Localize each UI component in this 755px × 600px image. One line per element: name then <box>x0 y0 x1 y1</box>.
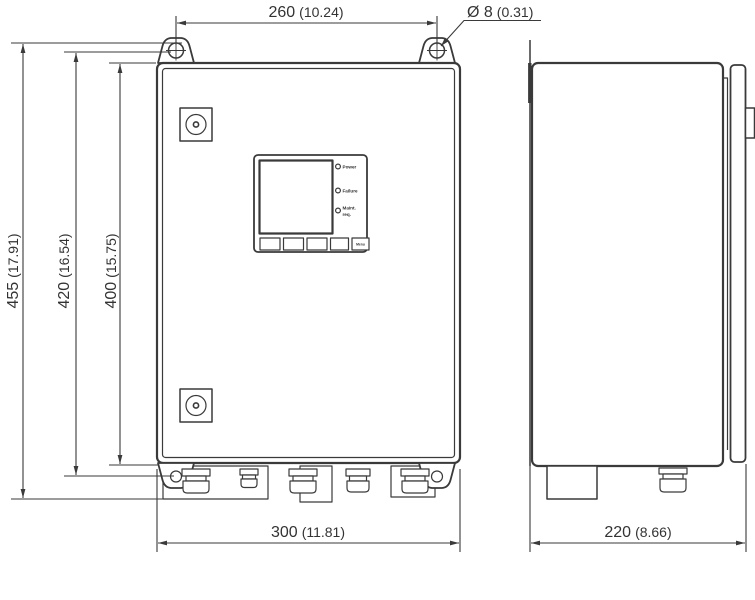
bottom-box-side <box>547 466 597 499</box>
mounting-hole-bottom-right <box>432 471 443 482</box>
soft-key-3 <box>307 238 327 250</box>
led-failure-label: Failure <box>343 189 359 194</box>
dim-label-body-height: 400(15.75) <box>103 233 120 308</box>
side-view <box>530 40 755 499</box>
soft-key-1 <box>260 238 280 250</box>
led-maint-icon <box>336 208 341 213</box>
led-maint-label-line2: req. <box>343 212 351 217</box>
wall-bracket <box>731 65 746 462</box>
cable-gland-3 <box>289 469 317 493</box>
dimension-lug-spacing: 260(10.24) <box>176 4 437 45</box>
cable-gland-4 <box>346 469 370 492</box>
dim-label-body-width: 300(11.81) <box>271 524 345 541</box>
soft-key-2 <box>284 238 304 250</box>
enclosure-body-side <box>532 63 723 466</box>
door-screw-bottom <box>180 389 212 422</box>
display-screen <box>260 161 333 234</box>
drawing-canvas: Power Failure Maint. req. Menu <box>0 0 755 600</box>
led-maint-label: Maint. <box>343 206 356 211</box>
cable-gland-2 <box>240 469 258 488</box>
led-power-icon <box>336 164 341 169</box>
led-power-label: Power <box>343 165 357 170</box>
control-panel: Power Failure Maint. req. Menu <box>254 155 369 252</box>
cable-gland-side <box>659 468 687 492</box>
cable-gland-5 <box>401 469 429 493</box>
front-view: Power Failure Maint. req. Menu <box>157 38 460 502</box>
menu-button-label: Menu <box>356 242 365 246</box>
led-failure-icon <box>336 188 341 193</box>
soft-key-4 <box>331 238 349 250</box>
cable-gland-1 <box>182 469 210 493</box>
dim-label-depth: 220(8.66) <box>604 524 671 541</box>
dim-label-overall-height: 455(17.91) <box>5 233 22 308</box>
door-screw-top <box>180 108 212 141</box>
dimension-drawing: Power Failure Maint. req. Menu <box>0 0 755 600</box>
dimension-body-height: 400(15.75) <box>103 63 158 465</box>
dim-label-lug-spacing: 260(10.24) <box>268 4 343 21</box>
dim-label-hole-diameter: Ø 8(0.31) <box>467 4 533 21</box>
dimension-hole-diameter: Ø 8(0.31) <box>441 4 541 46</box>
dim-label-mounting-height: 420(16.54) <box>56 233 73 308</box>
bracket-tab <box>746 108 755 138</box>
